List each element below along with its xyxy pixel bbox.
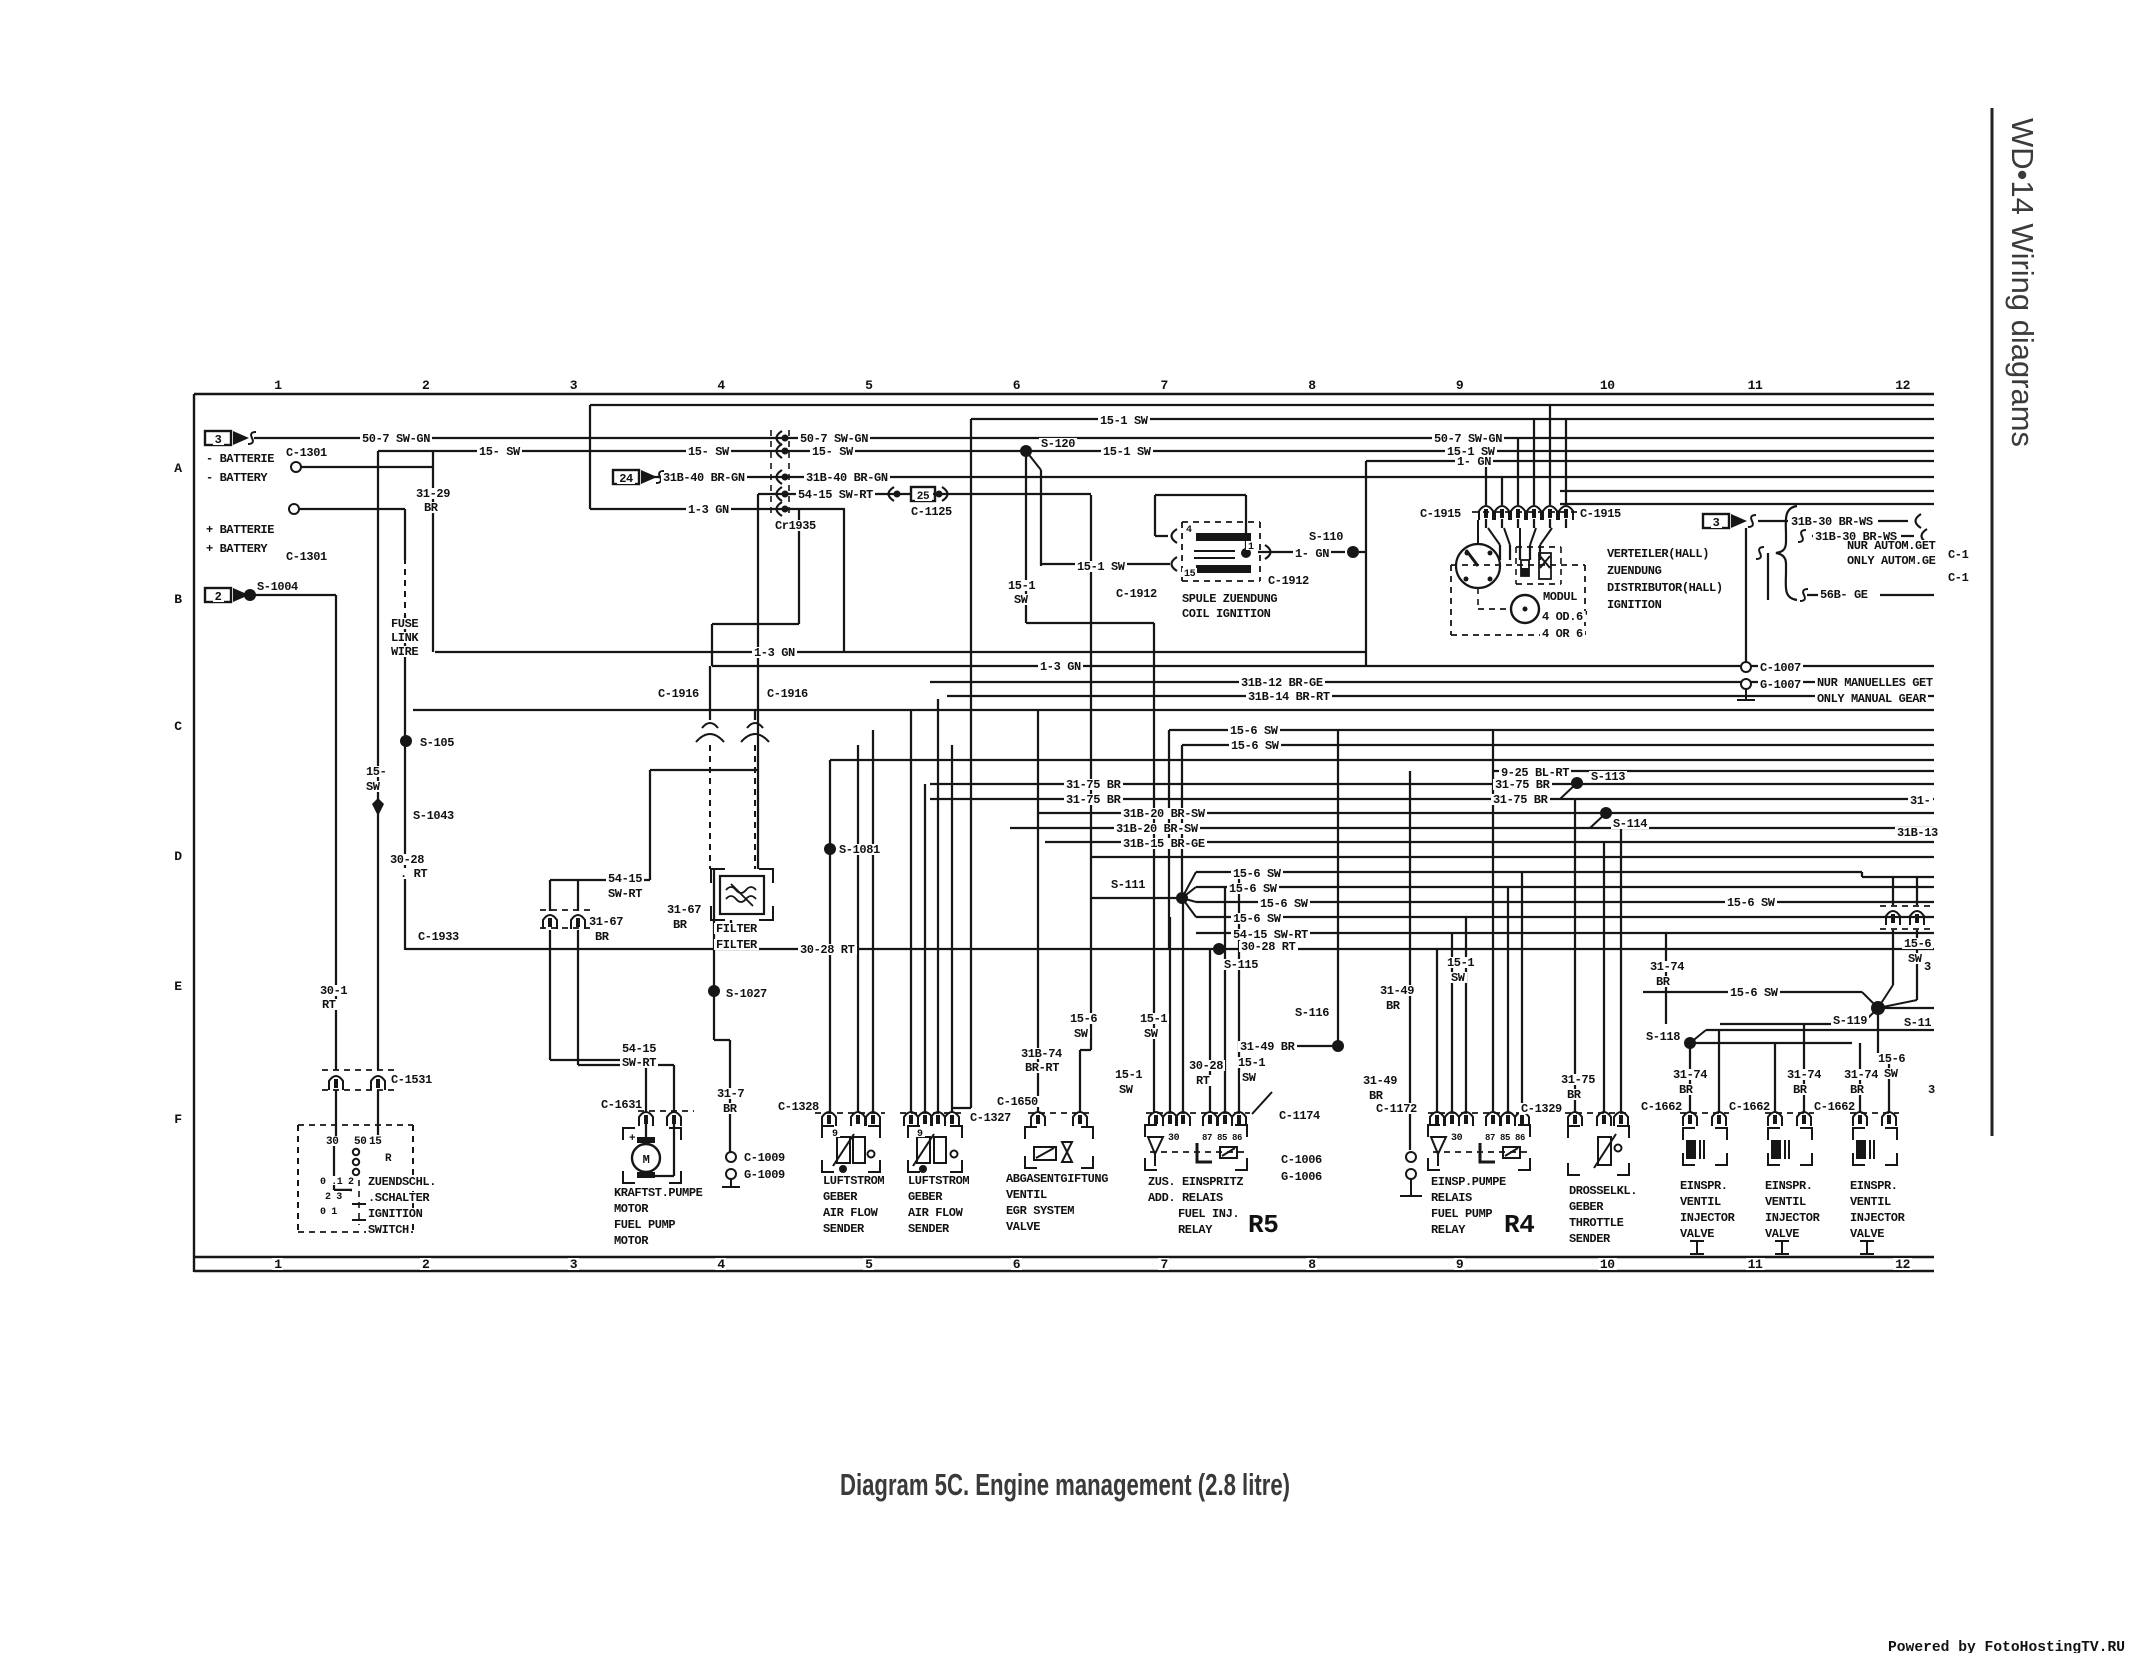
svg-text:M: M [643,1153,650,1167]
svg-text:11: 11 [1748,1257,1763,1272]
svg-text:0 .1 2: 0 .1 2 [320,1177,354,1188]
svg-text:1: 1 [1248,542,1254,553]
svg-text:15-1 SW: 15-1 SW [1103,445,1152,459]
svg-text:15- SW: 15- SW [479,445,521,459]
svg-text:INJECTOR: INJECTOR [1680,1211,1736,1225]
svg-text:ONLY AUTOM.GE: ONLY AUTOM.GE [1847,554,1936,568]
svg-text:C-1933: C-1933 [418,930,459,944]
svg-text:GEBER: GEBER [1569,1200,1604,1214]
svg-text:KRAFTST.PUMPE: KRAFTST.PUMPE [614,1186,703,1200]
svg-text:G-1009: G-1009 [744,1168,785,1182]
svg-text:Powered by FotoHostingTV.RU: Powered by FotoHostingTV.RU [1888,1639,2125,1653]
svg-text:. RT: . RT [400,867,427,881]
svg-text:RELAY: RELAY [1431,1223,1466,1237]
svg-text:C-1125: C-1125 [911,505,952,519]
svg-text:COIL IGNITION: COIL IGNITION [1182,607,1271,621]
svg-text:C-1915: C-1915 [1420,507,1461,521]
svg-text:MOTOR: MOTOR [614,1234,649,1248]
svg-text:ZUENDUNG: ZUENDUNG [1607,564,1662,578]
svg-text:ONLY MANUAL GEAR: ONLY MANUAL GEAR [1817,692,1927,706]
svg-text:BR: BR [1850,1083,1865,1097]
svg-text:50-7 SW-GN: 50-7 SW-GN [362,432,430,446]
svg-text:15-6: 15-6 [1878,1052,1905,1066]
svg-text:15-6 SW: 15-6 SW [1727,896,1776,910]
svg-text:24: 24 [619,472,633,486]
svg-text:31-49: 31-49 [1363,1074,1397,1088]
svg-text:BR: BR [1386,999,1401,1013]
svg-text:E: E [174,979,182,994]
svg-text:87 85 86: 87 85 86 [1485,1133,1525,1143]
svg-text:MODUL: MODUL [1543,590,1577,604]
svg-text:31-49: 31-49 [1380,984,1414,998]
svg-text:50-7 SW-GN: 50-7 SW-GN [800,432,868,446]
svg-text:VENTIL: VENTIL [1765,1195,1806,1209]
svg-text:10: 10 [1600,378,1615,393]
svg-text:31-75: 31-75 [1561,1073,1595,1087]
svg-text:1: 1 [274,378,282,393]
svg-text:FILTER: FILTER [716,922,758,936]
svg-text:RELAIS: RELAIS [1431,1191,1472,1205]
svg-text:31-75 BR: 31-75 BR [1493,793,1549,807]
svg-text:SENDER: SENDER [1569,1232,1611,1246]
svg-text:VALVE: VALVE [1765,1227,1799,1241]
svg-text:LINK: LINK [391,631,419,645]
svg-text:- BATTERY: - BATTERY [206,471,268,485]
svg-text:9: 9 [1456,1257,1464,1272]
svg-text:G-1007: G-1007 [1760,678,1801,692]
svg-text:31-75 BR: 31-75 BR [1495,778,1551,792]
svg-text:EINSPR.: EINSPR. [1680,1179,1728,1193]
svg-text:C-1172: C-1172 [1376,1102,1417,1116]
svg-text:15-6: 15-6 [1070,1012,1097,1026]
svg-text:SENDER: SENDER [908,1222,950,1236]
svg-text:FILTER: FILTER [716,938,758,952]
svg-text:15-1: 15-1 [1140,1012,1167,1026]
svg-text:LUFTSTROM: LUFTSTROM [908,1174,969,1188]
svg-text:F: F [174,1112,182,1127]
svg-text:15-1: 15-1 [1115,1068,1142,1082]
svg-text:4 OR 6: 4 OR 6 [1542,627,1583,641]
svg-text:ZUS. EINSPRITZ: ZUS. EINSPRITZ [1148,1175,1243,1189]
svg-text:30: 30 [1168,1133,1180,1144]
svg-text:+ BATTERIE: + BATTERIE [206,523,274,537]
svg-text:31B-74: 31B-74 [1021,1047,1062,1061]
svg-text:54-15: 54-15 [622,1042,656,1056]
svg-text:C-1531: C-1531 [391,1073,432,1087]
svg-text:15-6 SW: 15-6 SW [1229,882,1278,896]
svg-text:31B-40 BR-GN: 31B-40 BR-GN [806,471,888,485]
svg-text:30-28 RT: 30-28 RT [800,943,855,957]
svg-text:C-1: C-1 [1948,548,1969,562]
svg-text:C-1009: C-1009 [744,1151,785,1165]
svg-text:31-29: 31-29 [416,487,450,501]
svg-text:BR: BR [1567,1088,1582,1102]
svg-text:31B-15 BR-GE: 31B-15 BR-GE [1123,837,1205,851]
svg-text:15-1: 15-1 [1238,1056,1265,1070]
svg-text:30-28 RT: 30-28 RT [1241,940,1296,954]
svg-text:7: 7 [1160,1257,1167,1272]
svg-text:2: 2 [422,1257,430,1272]
svg-text:FUEL PUMP: FUEL PUMP [1431,1207,1492,1221]
svg-text:S-111: S-111 [1111,878,1145,892]
svg-text:VALVE: VALVE [1850,1227,1884,1241]
svg-text:1- GN: 1- GN [1295,547,1329,561]
svg-text:31-74: 31-74 [1844,1068,1878,1082]
svg-text:DISTRIBUTOR(HALL): DISTRIBUTOR(HALL) [1607,581,1723,595]
svg-text:31-74: 31-74 [1650,960,1684,974]
svg-text:C-1631: C-1631 [601,1098,642,1112]
svg-text:C: C [174,719,182,734]
svg-text:12: 12 [1895,1257,1910,1272]
svg-text:R5: R5 [1248,1210,1278,1240]
svg-text:VENTIL: VENTIL [1850,1195,1891,1209]
svg-text:15-: 15- [366,765,386,779]
svg-text:C-1301: C-1301 [286,446,327,460]
svg-text:FUEL PUMP: FUEL PUMP [614,1218,675,1232]
svg-text:15-6 SW: 15-6 SW [1730,986,1779,1000]
svg-text:WD•14 Wiring diagrams: WD•14 Wiring diagrams [2005,118,2040,447]
svg-text:RT: RT [1196,1074,1210,1088]
svg-text:15-1: 15-1 [1447,956,1474,970]
svg-text:GEBER: GEBER [908,1190,943,1204]
svg-text:C-1916: C-1916 [658,687,699,701]
svg-text:C-1916: C-1916 [767,687,808,701]
svg-text:BR: BR [595,930,610,944]
svg-text:VENTIL: VENTIL [1680,1195,1721,1209]
svg-text:C-1007: C-1007 [1760,661,1801,675]
svg-text:C-1662: C-1662 [1729,1100,1770,1114]
svg-text:G-1006: G-1006 [1281,1170,1322,1184]
svg-text:NUR AUTOM.GET: NUR AUTOM.GET [1847,539,1936,553]
svg-text:54-15: 54-15 [608,872,642,886]
svg-text:Diagram 5C. Engine management: Diagram 5C. Engine management (2.8 litre… [840,1467,1290,1502]
svg-text:30-28: 30-28 [1189,1059,1223,1073]
svg-text:31-75 BR: 31-75 BR [1066,793,1122,807]
svg-text:S-115: S-115 [1224,958,1258,972]
svg-text:1-3 GN: 1-3 GN [688,503,729,517]
svg-text:15- SW: 15- SW [812,445,854,459]
svg-text:5: 5 [865,1257,873,1272]
svg-text:SENDER: SENDER [823,1222,865,1236]
svg-text:.SCHALTER: .SCHALTER [368,1191,430,1205]
svg-text:C-1662: C-1662 [1814,1100,1855,1114]
svg-text:VERTEILER(HALL): VERTEILER(HALL) [1607,547,1709,561]
svg-text:C-1327: C-1327 [970,1111,1011,1125]
svg-text:IGNITION: IGNITION [368,1207,423,1221]
svg-text:R: R [385,1153,392,1165]
svg-text:30-1: 30-1 [320,984,347,998]
svg-text:31-49 BR: 31-49 BR [1240,1040,1296,1054]
svg-text:S-1081: S-1081 [839,843,880,857]
svg-text:AIR FLOW: AIR FLOW [823,1206,879,1220]
svg-text:SW: SW [1074,1027,1089,1041]
svg-text:R4: R4 [1504,1210,1534,1240]
svg-text:VALVE: VALVE [1006,1220,1040,1234]
svg-text:30: 30 [1451,1133,1463,1144]
svg-text:EGR SYSTEM: EGR SYSTEM [1006,1204,1074,1218]
svg-text:SW: SW [1242,1071,1257,1085]
svg-text:15-6 SW: 15-6 SW [1230,724,1279,738]
svg-text:31-7: 31-7 [717,1087,744,1101]
svg-text:15- SW: 15- SW [688,445,730,459]
svg-text:BR: BR [1793,1083,1808,1097]
svg-text:IGNITION: IGNITION [1607,598,1662,612]
svg-text:ZUENDSCHL.: ZUENDSCHL. [368,1175,436,1189]
svg-text:4 OD.6': 4 OD.6' [1542,610,1590,624]
svg-text:C-1915: C-1915 [1580,507,1621,521]
svg-text:LUFTSTROM: LUFTSTROM [823,1174,884,1188]
svg-text:SW-RT: SW-RT [608,887,642,901]
svg-text:3: 3 [215,433,222,447]
svg-text:4: 4 [1186,525,1192,536]
svg-text:A: A [174,461,182,476]
svg-text:BR: BR [723,1102,738,1116]
svg-text:3: 3 [1924,960,1931,974]
svg-text:3: 3 [1928,1083,1935,1097]
svg-text:15: 15 [1184,569,1196,580]
svg-text:AIR FLOW: AIR FLOW [908,1206,964,1220]
svg-text:31-74: 31-74 [1673,1068,1707,1082]
svg-text:BR: BR [1656,975,1671,989]
svg-text:4: 4 [717,378,725,393]
svg-text:31B-20 BR-SW: 31B-20 BR-SW [1123,807,1206,821]
svg-text:31-75 BR: 31-75 BR [1066,778,1122,792]
svg-text:BR: BR [673,918,688,932]
svg-text:S-1027: S-1027 [726,987,767,1001]
svg-text:SWITCH: SWITCH [368,1223,409,1237]
svg-text:56B- GE: 56B- GE [1820,588,1868,602]
svg-text:31B-14 BR-RT: 31B-14 BR-RT [1248,690,1330,704]
svg-text:54-15 SW-RT: 54-15 SW-RT [798,488,873,502]
svg-text:S-118: S-118 [1646,1030,1680,1044]
svg-text:15-6 SW: 15-6 SW [1233,912,1282,926]
svg-text:C-1912: C-1912 [1268,574,1309,588]
svg-text:INJECTOR: INJECTOR [1850,1211,1906,1225]
svg-text:S-119: S-119 [1833,1014,1867,1028]
svg-text:SW: SW [1014,593,1029,607]
svg-text:D: D [174,849,182,864]
svg-text:31-67: 31-67 [589,915,623,929]
svg-text:0 1: 0 1 [320,1207,337,1218]
svg-text:S-113: S-113 [1591,770,1625,784]
svg-text:15-6 SW: 15-6 SW [1260,897,1309,911]
svg-text:31B-13: 31B-13 [1897,826,1938,840]
svg-text:6: 6 [1013,378,1021,393]
svg-text:31B-30 BR-WS: 31B-30 BR-WS [1791,515,1873,529]
svg-text:EINSP.PUMPE: EINSP.PUMPE [1431,1175,1506,1189]
svg-text:5: 5 [865,378,873,393]
svg-text:9: 9 [1456,378,1464,393]
svg-text:31-67: 31-67 [667,903,701,917]
svg-text:+ BATTERY: + BATTERY [206,542,268,556]
svg-text:S-11: S-11 [1904,1016,1931,1030]
svg-text:1-3 GN: 1-3 GN [1040,660,1081,674]
svg-text:31B-12 BR-GE: 31B-12 BR-GE [1241,676,1323,690]
svg-text:BR-RT: BR-RT [1025,1061,1059,1075]
svg-text:B: B [174,592,182,607]
svg-text:BR: BR [1679,1083,1694,1097]
svg-text:RELAY: RELAY [1178,1223,1213,1237]
svg-text:7: 7 [1160,378,1167,393]
svg-text:C-1006: C-1006 [1281,1153,1322,1167]
svg-text:C-1: C-1 [1948,571,1969,585]
svg-text:87 85 86: 87 85 86 [1202,1133,1242,1143]
svg-text:S-1043: S-1043 [413,809,454,823]
svg-text:15-1: 15-1 [1008,579,1035,593]
svg-text:30: 30 [326,1136,338,1148]
svg-text:2 3: 2 3 [325,1192,342,1203]
svg-text:S-1004: S-1004 [257,580,298,594]
svg-text:12: 12 [1895,378,1910,393]
svg-text:FUSE: FUSE [391,617,418,631]
svg-text:1: 1 [274,1257,282,1272]
svg-text:RT: RT [322,998,336,1012]
svg-text:9: 9 [832,1129,838,1140]
svg-text:2: 2 [422,378,430,393]
svg-text:8: 8 [1308,378,1316,393]
svg-text:2: 2 [215,590,222,604]
svg-text:S-110: S-110 [1309,530,1343,544]
svg-text:+: + [629,1133,636,1145]
svg-text:S-105: S-105 [420,736,454,750]
svg-text:31-74: 31-74 [1787,1068,1821,1082]
svg-text:15-6 SW: 15-6 SW [1231,739,1280,753]
svg-text:50-7 SW-GN: 50-7 SW-GN [1434,432,1502,446]
svg-text:MOTOR: MOTOR [614,1202,649,1216]
svg-text:1-3 GN: 1-3 GN [754,646,795,660]
svg-text:BR: BR [424,501,439,515]
svg-text:C-1301: C-1301 [286,550,327,564]
svg-text:SW: SW [366,780,381,794]
svg-text:VENTIL: VENTIL [1006,1188,1047,1202]
svg-text:SW: SW [1451,971,1466,985]
svg-text:INJECTOR: INJECTOR [1765,1211,1821,1225]
svg-text:C-1912: C-1912 [1116,587,1157,601]
svg-text:ABGASENTGIFTUNG: ABGASENTGIFTUNG [1006,1172,1108,1186]
svg-text:1- GN: 1- GN [1457,455,1491,469]
svg-text:S-120: S-120 [1041,437,1075,451]
svg-text:31B-20 BR-SW: 31B-20 BR-SW [1116,822,1199,836]
svg-text:15: 15 [369,1136,382,1148]
svg-text:4: 4 [717,1257,725,1272]
svg-text:31B-40 BR-GN: 31B-40 BR-GN [663,471,745,485]
svg-text:31-: 31- [1910,794,1930,808]
svg-text:FUEL INJ.: FUEL INJ. [1178,1207,1239,1221]
svg-text:EINSPR.: EINSPR. [1765,1179,1813,1193]
svg-text:C-1662: C-1662 [1641,1100,1682,1114]
svg-text:3: 3 [570,1257,578,1272]
svg-text:NUR MANUELLES GET: NUR MANUELLES GET [1817,676,1933,690]
svg-text:S-114: S-114 [1613,817,1647,831]
svg-text:Cr1935: Cr1935 [775,519,816,533]
svg-text:3: 3 [570,378,578,393]
svg-text:S-116: S-116 [1295,1006,1329,1020]
svg-text:SW: SW [1908,952,1923,966]
svg-text:C-1174: C-1174 [1279,1109,1320,1123]
svg-text:VALVE: VALVE [1680,1227,1714,1241]
svg-text:- BATTERIE: - BATTERIE [206,452,274,466]
svg-text:30-28: 30-28 [390,853,424,867]
svg-text:WIRE: WIRE [391,645,418,659]
svg-text:EINSPR.: EINSPR. [1850,1179,1898,1193]
svg-text:SPULE ZUENDUNG: SPULE ZUENDUNG [1182,592,1277,606]
svg-text:THROTTLE: THROTTLE [1569,1216,1624,1230]
svg-text:DROSSELKL.: DROSSELKL. [1569,1184,1637,1198]
svg-text:SW: SW [1144,1027,1159,1041]
svg-text:15-6 SW: 15-6 SW [1233,867,1282,881]
svg-text:15-1 SW: 15-1 SW [1100,414,1149,428]
svg-text:ADD. RELAIS: ADD. RELAIS [1148,1191,1223,1205]
svg-text:11: 11 [1748,378,1763,393]
svg-text:SW: SW [1884,1067,1899,1081]
svg-text:6: 6 [1013,1257,1021,1272]
svg-text:C-1329: C-1329 [1521,1102,1562,1116]
svg-text:10: 10 [1600,1257,1615,1272]
svg-text:BR: BR [1369,1089,1384,1103]
svg-text:8: 8 [1308,1257,1316,1272]
svg-text:C-1650: C-1650 [997,1095,1038,1109]
svg-text:GEBER: GEBER [823,1190,858,1204]
svg-text:C-1328: C-1328 [778,1100,819,1114]
svg-text:SW-RT: SW-RT [622,1056,656,1070]
svg-text:9: 9 [917,1129,923,1140]
svg-text:3: 3 [1713,516,1720,530]
svg-text:15-6: 15-6 [1904,937,1931,951]
svg-text:25: 25 [917,491,930,503]
svg-text:SW: SW [1119,1083,1134,1097]
svg-text:15-1 SW: 15-1 SW [1077,560,1126,574]
svg-text:50: 50 [354,1136,366,1148]
